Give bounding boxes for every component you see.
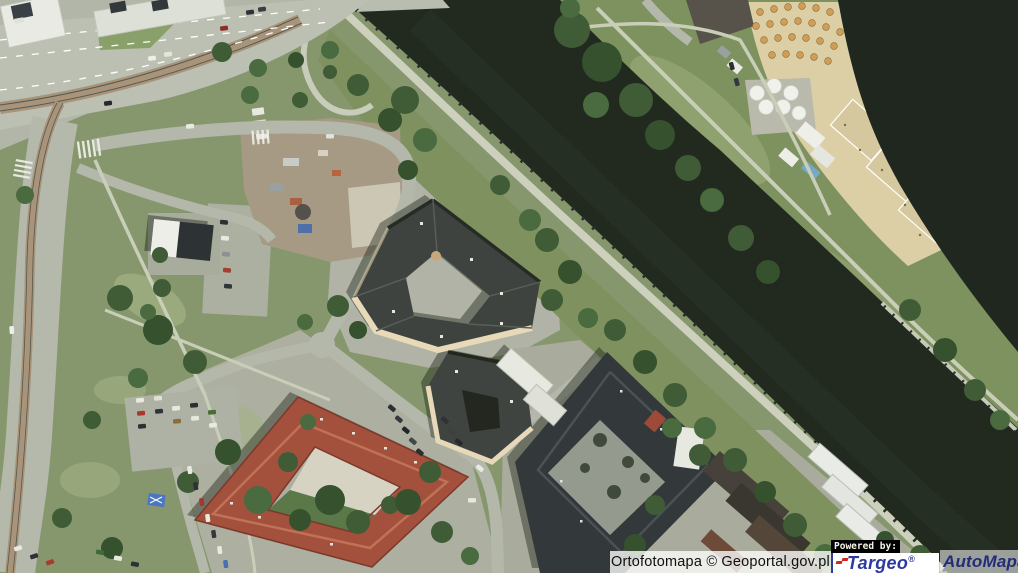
targeo-logo[interactable]: Targeo ® bbox=[831, 553, 939, 573]
map-attribution: Ortofotomapa © Geoportal.gov.pl bbox=[610, 551, 831, 573]
targeo-dots-icon bbox=[836, 555, 847, 571]
automapa-logo[interactable]: AutoMapa ® bbox=[940, 550, 1018, 573]
automapa-wordmark: AutoMapa bbox=[943, 552, 1018, 572]
map-viewport: Ortofotomapa © Geoportal.gov.pl Powered … bbox=[0, 0, 1018, 573]
targeo-registered-mark: ® bbox=[908, 554, 915, 564]
targeo-wordmark: Targeo bbox=[847, 553, 908, 573]
attribution-text: Ortofotomapa © Geoportal.gov.pl bbox=[611, 554, 830, 570]
aerial-map-canvas[interactable] bbox=[0, 0, 1018, 573]
